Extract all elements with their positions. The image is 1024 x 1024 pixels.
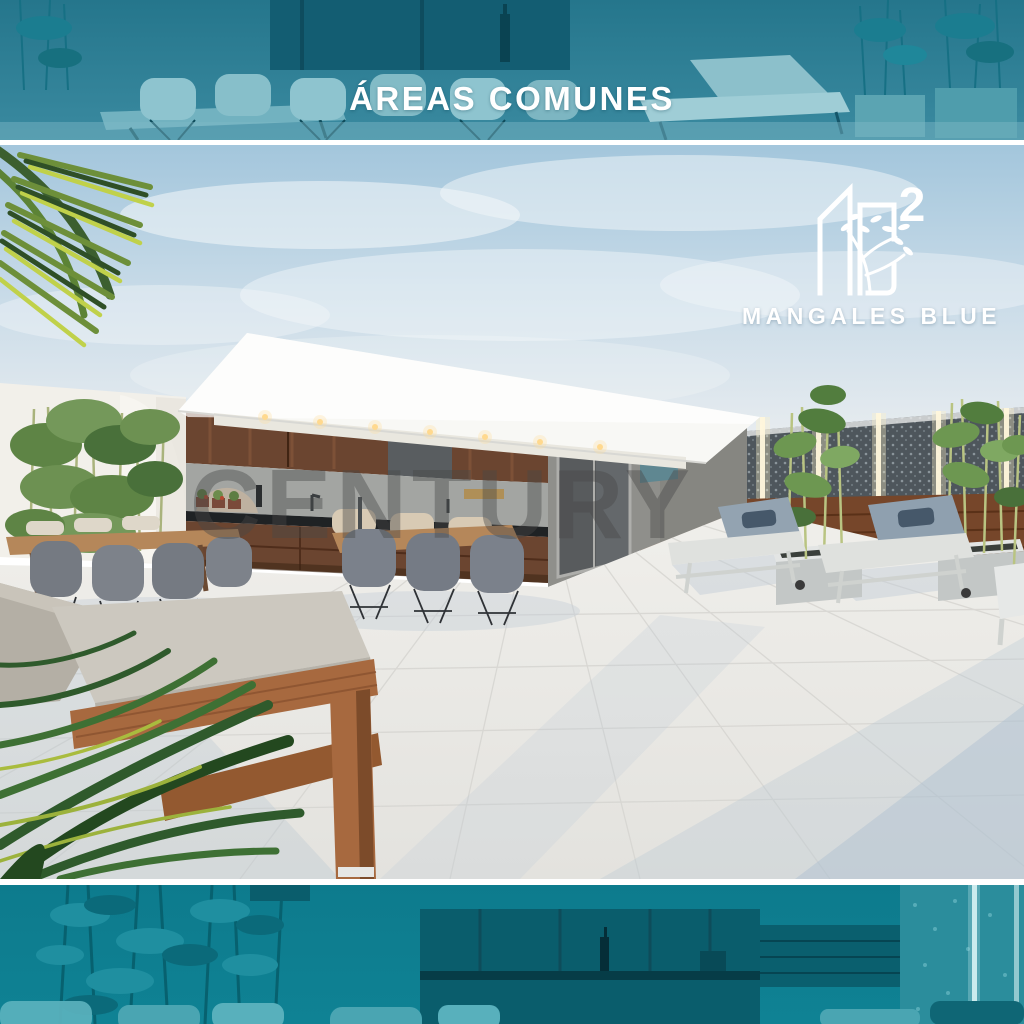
page-title: ÁREAS COMUNES (0, 80, 1024, 118)
banner-floor-glow (0, 122, 1024, 140)
header-banner: ÁREAS COMUNES (0, 0, 1024, 140)
brand-logo: 2 MANGALES BLUE (742, 167, 998, 330)
buildings-branch-icon: 2 (804, 167, 936, 301)
main-render: ) (0, 145, 1024, 879)
footer-banner-art (0, 885, 1024, 1024)
banner-cabinet-silhouette (270, 0, 570, 70)
flyer-canvas: ÁREAS COMUNES (0, 0, 1024, 1024)
watermark: CENTURY (190, 448, 695, 561)
logo-superscript-2: 2 (899, 179, 926, 232)
brand-name: MANGALES BLUE (742, 303, 998, 330)
footer-banner (0, 885, 1024, 1024)
footer-wood-slats (760, 925, 910, 987)
header-banner-art (0, 0, 1024, 140)
